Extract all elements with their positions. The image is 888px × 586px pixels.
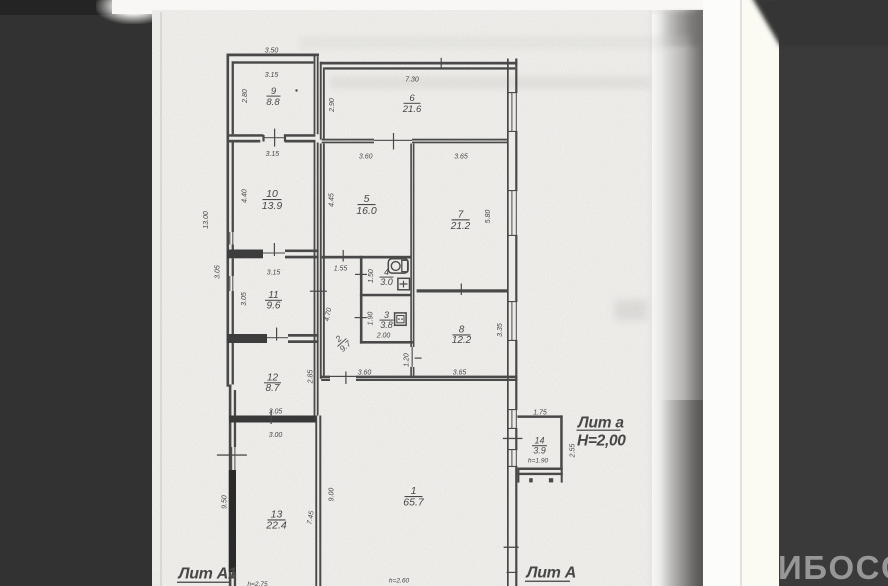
svg-text:12.2: 12.2: [452, 335, 472, 346]
svg-text:5: 5: [364, 193, 370, 205]
svg-text:2.85: 2.85: [308, 370, 315, 385]
svg-text:16.0: 16.0: [356, 205, 377, 217]
svg-text:1.55: 1.55: [334, 266, 348, 273]
svg-text:3.15: 3.15: [266, 151, 280, 158]
svg-text:3.50: 3.50: [265, 48, 279, 55]
svg-text:1.75: 1.75: [533, 410, 547, 417]
svg-text:h=2.75: h=2.75: [247, 581, 268, 586]
svg-text:3.8: 3.8: [380, 320, 393, 330]
svg-text:8: 8: [459, 325, 465, 336]
svg-text:9: 9: [271, 86, 277, 97]
svg-text:12: 12: [267, 373, 279, 384]
svg-text:1.20: 1.20: [404, 353, 411, 367]
svg-text:8.8: 8.8: [266, 97, 280, 108]
svg-text:6: 6: [409, 93, 415, 104]
svg-text:4.40: 4.40: [242, 189, 249, 203]
svg-text:14: 14: [534, 436, 544, 446]
svg-text:2.00: 2.00: [376, 333, 391, 340]
svg-text:65.7: 65.7: [403, 497, 425, 509]
svg-text:5.80: 5.80: [485, 210, 492, 224]
svg-text:3.15: 3.15: [267, 270, 281, 277]
svg-text:11: 11: [268, 290, 278, 301]
svg-text:3.00: 3.00: [269, 432, 283, 439]
svg-text:3.05: 3.05: [215, 265, 222, 279]
svg-text:2.55: 2.55: [570, 444, 577, 459]
svg-text:9.00: 9.00: [329, 488, 336, 502]
svg-text:21.6: 21.6: [402, 104, 422, 115]
svg-text:3.60: 3.60: [358, 370, 372, 377]
svg-text:9.50: 9.50: [222, 495, 229, 509]
svg-text:3.9: 3.9: [533, 446, 546, 456]
svg-text:3.60: 3.60: [359, 154, 373, 161]
svg-text:2.80: 2.80: [242, 89, 249, 104]
svg-text:1: 1: [411, 485, 417, 497]
svg-text:13.00: 13.00: [203, 211, 210, 229]
svg-text:3.05: 3.05: [269, 409, 283, 416]
svg-text:13.9: 13.9: [262, 200, 283, 212]
svg-text:3.05: 3.05: [241, 292, 248, 306]
svg-text:3.15: 3.15: [265, 72, 279, 79]
svg-text:7.30: 7.30: [405, 77, 419, 84]
svg-text:Лит А: Лит А: [526, 565, 577, 582]
svg-text:10: 10: [266, 188, 278, 200]
svg-text:h=2.60: h=2.60: [389, 578, 410, 585]
svg-text:3.0: 3.0: [380, 277, 393, 287]
svg-text:21.2: 21.2: [450, 221, 471, 232]
svg-text:7: 7: [458, 210, 464, 221]
svg-text:4: 4: [384, 267, 389, 277]
svg-text:3: 3: [384, 310, 389, 320]
svg-text:2.90: 2.90: [329, 98, 336, 113]
svg-text:9.6: 9.6: [267, 301, 281, 312]
svg-text:1.50: 1.50: [368, 269, 375, 283]
svg-text:3.35: 3.35: [497, 323, 504, 337]
svg-text:Лит а: Лит а: [577, 415, 624, 432]
svg-text:h=1.90: h=1.90: [528, 458, 549, 465]
svg-text:Н=2,00: Н=2,00: [577, 433, 626, 450]
svg-text:4.45: 4.45: [329, 193, 336, 207]
svg-text:Лит А1: Лит А1: [178, 566, 237, 583]
svg-text:3.65: 3.65: [453, 370, 467, 377]
svg-text:22.4: 22.4: [265, 520, 287, 532]
svg-text:1.90: 1.90: [368, 312, 375, 326]
svg-text:3.65: 3.65: [454, 154, 468, 161]
svg-text:8.7: 8.7: [266, 383, 280, 394]
